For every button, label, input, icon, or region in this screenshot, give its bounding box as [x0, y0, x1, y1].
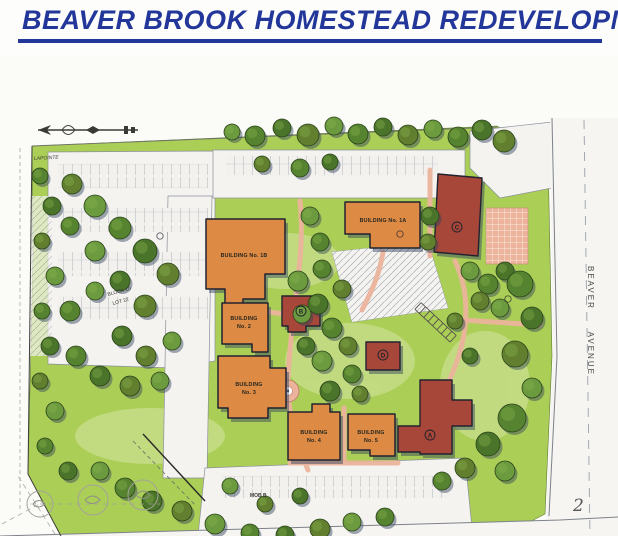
marker-a: A: [428, 433, 433, 440]
building-3-label: BUILDING: [235, 382, 262, 388]
page-title: BEAVER BROOK HOMESTEAD REDEVELOPMENT: [18, 5, 602, 43]
site-plan-drawing: BUILDING No. 1B BUILDING No. 1A BUILDING…: [0, 56, 618, 536]
building-1a-label: BUILDING No. 1A: [360, 218, 407, 224]
building-1b-label: BUILDING No. 1B: [221, 253, 268, 259]
building-5-label: BUILDING: [357, 430, 384, 436]
building-4-number: No. 4: [307, 438, 321, 444]
scanned-site-plan-page: BEAVER BROOK HOMESTEAD REDEVELOPMENT: [0, 0, 618, 536]
marker-d: D: [381, 353, 386, 360]
mob-label: MOB B: [250, 493, 267, 499]
existing-building-c: [434, 174, 482, 256]
terrace: [486, 208, 528, 264]
building-2-number: No. 2: [237, 324, 251, 330]
sheet-number: 2: [572, 496, 584, 516]
building-2-label: BUILDING: [230, 316, 257, 322]
beaver-avenue-label: BEAVER AVENUE: [586, 266, 595, 376]
building-4-label: BUILDING: [300, 430, 327, 436]
marker-c: C: [455, 225, 460, 232]
marker-b: B: [299, 309, 304, 316]
building-5-number: No. 5: [364, 438, 378, 444]
building-3-number: No. 3: [242, 390, 256, 396]
